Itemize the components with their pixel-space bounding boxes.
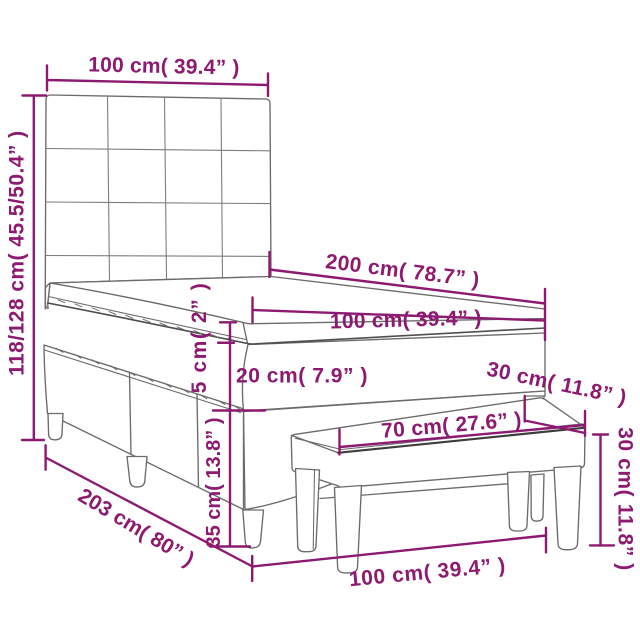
svg-text:118/128 cm( 45.5/50.4” ): 118/128 cm( 45.5/50.4” ) — [6, 130, 29, 375]
svg-text:100 cm( 39.4” ): 100 cm( 39.4” ) — [330, 307, 482, 334]
svg-text:30 cm( 11.8” ): 30 cm( 11.8” ) — [614, 427, 637, 571]
svg-text:20 cm( 7.9” ): 20 cm( 7.9” ) — [236, 365, 368, 388]
svg-text:35 cm( 13.8” ): 35 cm( 13.8” ) — [203, 417, 225, 547]
svg-text:100 cm( 39.4” ): 100 cm( 39.4” ) — [88, 53, 240, 79]
svg-text:5 cm( 2” ): 5 cm( 2” ) — [188, 282, 211, 394]
